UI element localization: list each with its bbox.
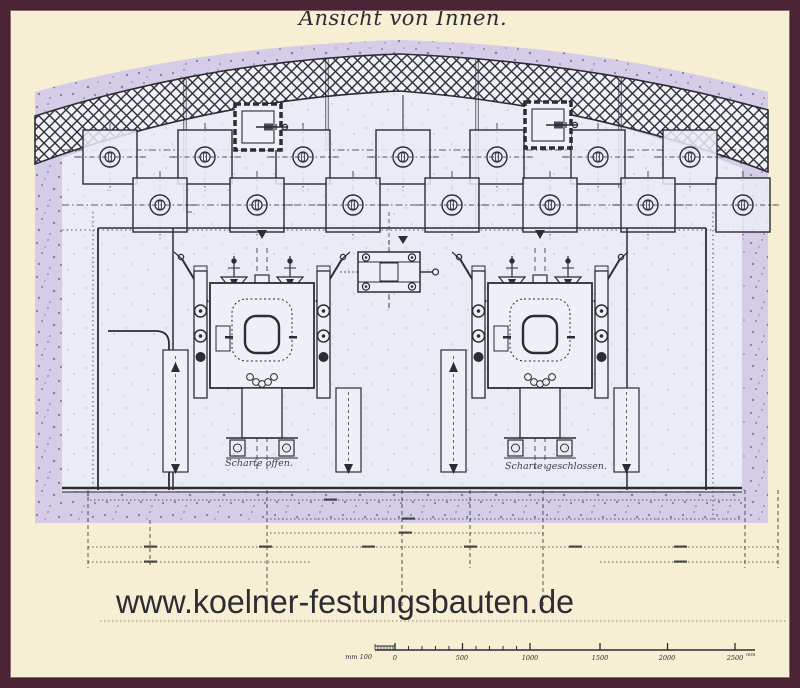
- scale-label-1000: 1000: [522, 654, 539, 662]
- embrasure-label-open: Scharte offen.: [225, 458, 293, 469]
- scale-label-1500: 1500: [592, 654, 609, 662]
- embrasure-label-closed: Scharte geschlossen.: [505, 461, 607, 472]
- scale-label-0: 0: [393, 654, 397, 662]
- scale-label-500: 500: [456, 654, 468, 662]
- scale-label-2000: 2000: [658, 654, 676, 662]
- vent-shaft-right: [525, 102, 578, 148]
- scale-label-2500: 2500: [726, 654, 744, 662]
- vent-shaft-left: [235, 104, 288, 150]
- scale-suffix: mm: [746, 652, 756, 658]
- scale-bar: mm 100 0 500 1000 1500 2000 2500 mm: [345, 643, 756, 662]
- scale-prefix: mm 100: [345, 653, 372, 661]
- drawing-title: Ansicht von Innen.: [297, 6, 507, 30]
- scanned-fortification-plan: Scharte offen. Scharte geschlossen.: [0, 0, 800, 688]
- watermark-text: www.koelner-festungsbauten.de: [115, 583, 574, 620]
- fortification-drawing: Scharte offen. Scharte geschlossen.: [0, 0, 800, 688]
